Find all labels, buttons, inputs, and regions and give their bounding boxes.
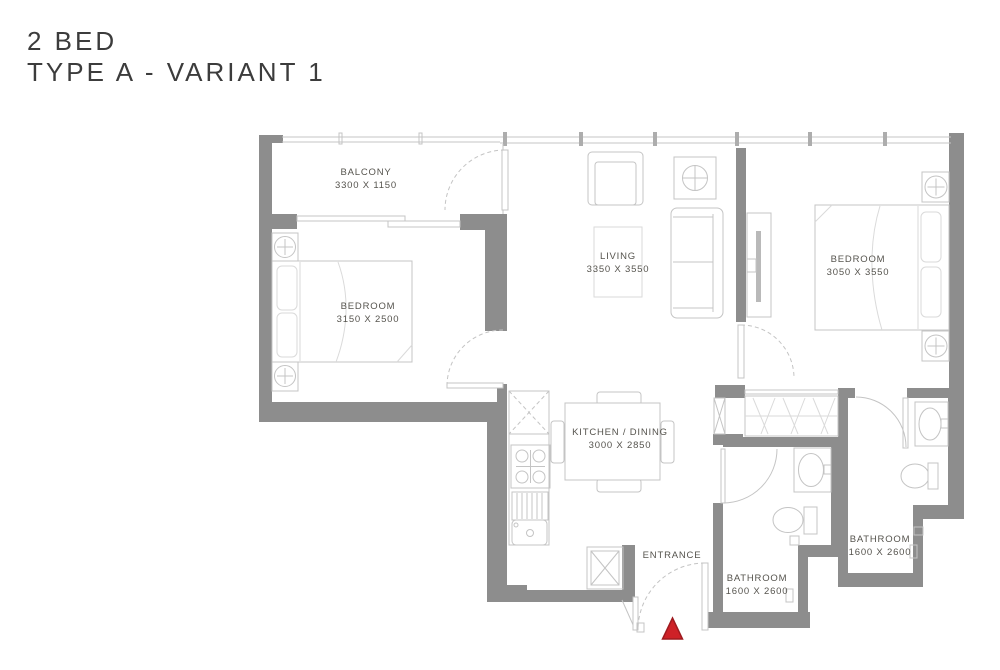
room-dims-kitchen: 3000 X 2850 [589, 440, 652, 451]
chair-icon [551, 421, 564, 463]
tv-icon [756, 231, 761, 302]
balcony-door-arc [445, 150, 505, 210]
floorplan-page: 2 BED TYPE A - VARIANT 1 [0, 0, 1000, 670]
room-dims-bedroom1: 3150 X 2500 [337, 314, 400, 325]
window-mullions [503, 132, 887, 146]
basin-icon [919, 408, 941, 440]
room-dims-bathroom2: 1600 X 2600 [849, 547, 912, 558]
entrance-marker [663, 618, 683, 639]
entrance-door-stop [622, 600, 634, 627]
bedroom1-door-leaf [447, 383, 503, 388]
toilet-tank [804, 507, 817, 534]
floorplan-drawing: BALCONY 3300 X 1150 BEDROOM 3150 X 2500 … [0, 0, 1000, 670]
basin-icon [799, 454, 824, 487]
living-furniture [588, 152, 723, 318]
room-label-bedroom1: BEDROOM [341, 301, 396, 312]
bathroom1-door-leaf [721, 449, 725, 503]
entrance-label: ENTRANCE [643, 550, 702, 561]
toilet-icon [773, 508, 803, 533]
wardrobe [745, 390, 838, 436]
room-dims-bathroom1: 1600 X 2600 [726, 586, 789, 597]
rug-icon [594, 227, 642, 297]
room-dims-living: 3350 X 3550 [587, 264, 650, 275]
room-label-kitchen: KITCHEN / DINING [572, 427, 668, 438]
chair-icon [597, 479, 641, 492]
room-dims-bedroom2: 3050 X 3550 [827, 267, 890, 278]
duct-shaft [714, 398, 725, 434]
room-label-living: LIVING [600, 251, 636, 262]
toilet-tank [928, 463, 938, 489]
room-dims-balcony: 3300 X 1150 [335, 180, 397, 191]
room-label-balcony: BALCONY [340, 167, 391, 178]
faucet-icon [824, 465, 831, 474]
stove-burners [516, 450, 545, 483]
room-label-bedroom2: BEDROOM [831, 254, 886, 265]
bathroom1-door-arc [723, 449, 777, 503]
entrance-door-leaf [702, 563, 708, 630]
room-label-bathroom1: BATHROOM [727, 573, 788, 584]
bedroom2-door-leaf [738, 325, 744, 378]
vanity-icon [794, 448, 831, 492]
bedroom1-door-arc [447, 330, 503, 386]
bedroom2-door-arc [741, 325, 794, 378]
toilet-icon [901, 464, 929, 488]
room-label-bathroom2: BATHROOM [850, 534, 911, 545]
wardrobe-front [745, 390, 838, 394]
bathroom2-door-arc [856, 397, 906, 447]
shower-mixer-icon [790, 536, 799, 545]
armchair-icon [588, 152, 643, 205]
sliding-window-pane [388, 221, 460, 227]
sofa-icon [671, 208, 723, 318]
faucet-icon [941, 419, 948, 428]
balcony-door-leaf [502, 150, 508, 210]
balcony-railing [282, 137, 500, 142]
sliding-window-pane [297, 216, 405, 221]
bedroom1-furniture [272, 233, 412, 391]
